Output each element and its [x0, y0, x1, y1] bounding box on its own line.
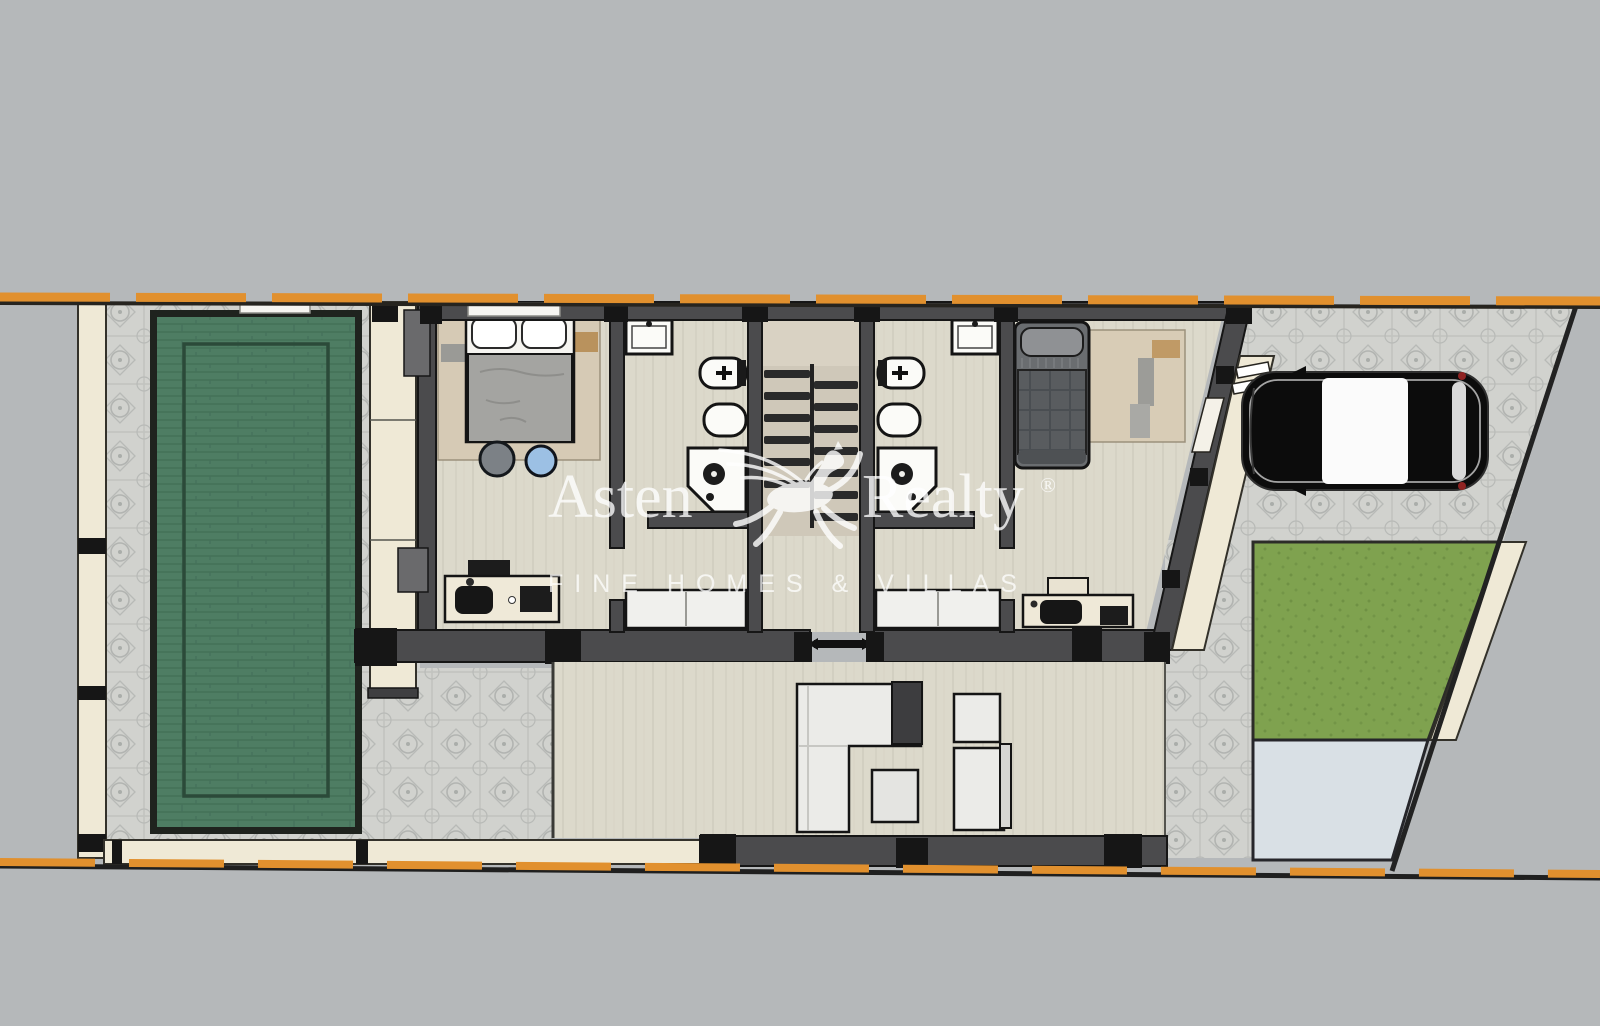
pillar: [866, 632, 884, 662]
pillow: [1021, 328, 1083, 356]
car-rear-window: [1452, 382, 1466, 480]
stair-tread: [814, 403, 858, 411]
top-boundary-dashed-orange: [0, 297, 1600, 301]
rug-patch: [1152, 340, 1180, 358]
desk-chair-back: [1048, 578, 1088, 596]
stair-tread: [764, 414, 810, 422]
pillar: [1162, 570, 1180, 588]
pillar: [1104, 834, 1142, 868]
double-bed: [466, 312, 574, 442]
desk-chair-back: [468, 560, 510, 576]
pillar: [1216, 366, 1234, 384]
round-stool-gray: [480, 442, 514, 476]
bedroom-level-south-wall: [868, 630, 1167, 662]
watermark-brand-left: Asten: [548, 463, 693, 531]
rug-patch: [1138, 358, 1154, 406]
watermark-brand-right: Realty: [862, 463, 1024, 531]
toilet-tank: [878, 360, 887, 386]
chaise-seat: [954, 748, 1004, 830]
pillar: [1144, 632, 1170, 664]
desk-lamp: [1031, 601, 1038, 608]
bidet: [878, 404, 920, 436]
taillight: [1458, 482, 1466, 490]
faucet: [646, 321, 652, 327]
stair-tread: [764, 392, 810, 400]
pillar: [355, 628, 397, 666]
chaise-side: [1000, 744, 1011, 828]
toilet-tank: [737, 360, 746, 386]
bottom-wall-joint: [112, 840, 122, 864]
pillow: [472, 318, 516, 348]
coffee-table: [872, 770, 918, 822]
taillight: [1458, 372, 1466, 380]
stair-tread: [814, 381, 858, 389]
pillow: [522, 318, 566, 348]
rug-patch: [1130, 404, 1150, 438]
partition-wall: [610, 600, 624, 632]
chaise-back: [954, 694, 1000, 742]
blanket: [468, 354, 572, 442]
left-wall-joint: [78, 834, 106, 852]
rug-patch: [441, 344, 467, 362]
sofa-corner-cushion: [892, 682, 922, 744]
stair-tread: [814, 425, 858, 433]
watermark-registered: ®: [1040, 473, 1056, 497]
desk-chair: [455, 586, 493, 614]
quilt-blanket: [1018, 370, 1086, 454]
pool-water: [157, 317, 355, 827]
left-wall-joint: [78, 686, 106, 700]
terrace-south-wall: [700, 836, 1167, 866]
watermark-tagline: FINE HOMES & VILLAS: [548, 570, 1028, 598]
left-wall-joint: [78, 538, 106, 554]
partition-wall: [1000, 600, 1014, 632]
mouse: [509, 597, 516, 604]
desk-chair: [1040, 600, 1082, 624]
faucet: [972, 321, 978, 327]
living-terrace: [553, 662, 1167, 868]
pillar: [896, 838, 928, 868]
swimming-pool: [150, 310, 362, 834]
stair-tread: [764, 370, 810, 378]
pillar: [700, 834, 736, 868]
left-plot-wall: [78, 302, 106, 858]
walkway-end: [368, 688, 418, 698]
pillar: [1072, 628, 1102, 664]
pillar: [545, 630, 581, 664]
parked-car: [1242, 366, 1488, 496]
bed-foot: [1018, 450, 1086, 464]
floor-plan-image: Asten Realty ® FINE HOMES & VILLAS: [0, 0, 1600, 1026]
bottom-wall-joint: [356, 840, 368, 864]
pillar: [794, 632, 812, 662]
stair-tread: [764, 436, 810, 444]
desk-lamp: [466, 578, 474, 586]
terrace-door: [808, 638, 872, 650]
side-table: [574, 332, 598, 352]
bedroom-level-south-wall: [355, 630, 810, 662]
wall-wardrobe-block: [398, 548, 428, 592]
bidet: [704, 404, 746, 436]
pillar: [1190, 468, 1208, 486]
laptop: [1100, 606, 1128, 625]
terrace-side-tiles: [420, 668, 553, 842]
single-bed: [1015, 322, 1089, 468]
car-windshield-roof-glass: [1322, 378, 1408, 484]
stair-landing: [762, 318, 860, 366]
